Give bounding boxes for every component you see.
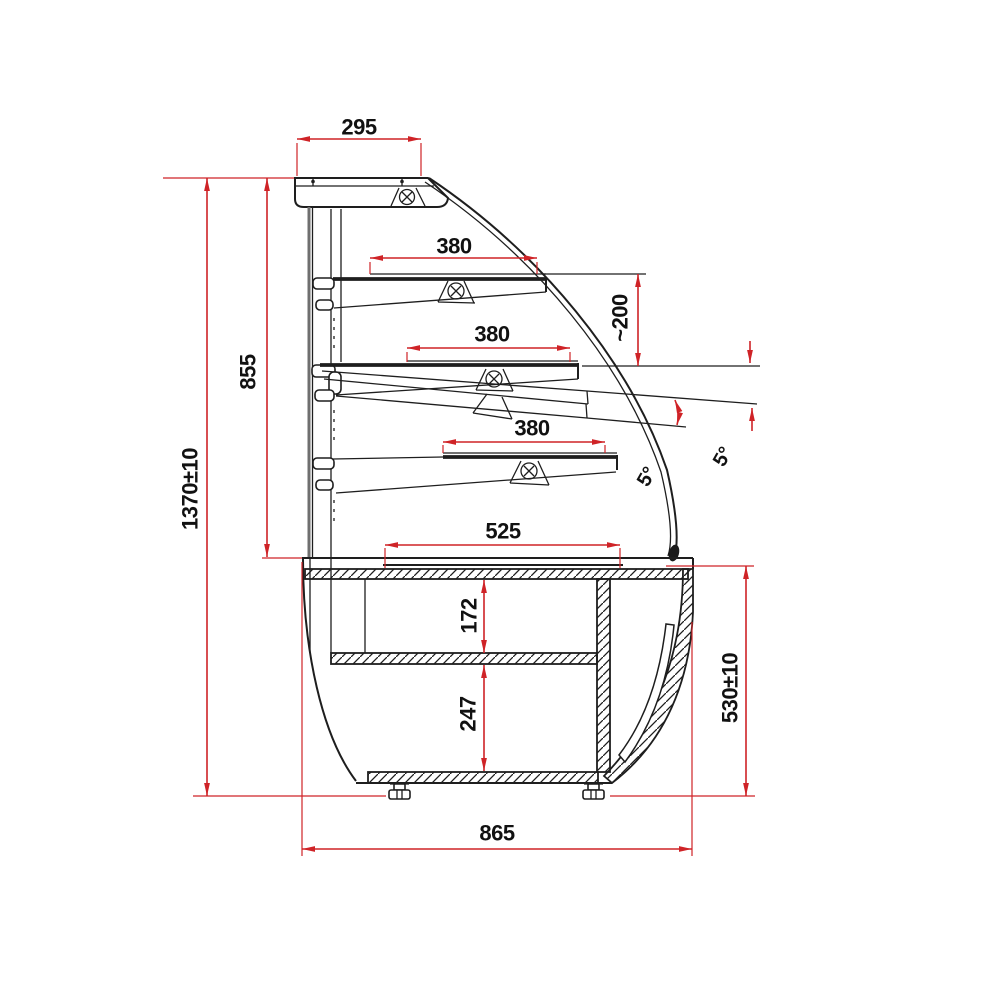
dim-shelf-bottom-depth: 380 xyxy=(443,416,605,454)
shelf-top xyxy=(313,274,546,310)
base-cabinet xyxy=(302,558,693,799)
dim-label-1370: 1370±10 xyxy=(178,448,203,530)
shelf-middle-tilted xyxy=(322,371,588,419)
shelf-bottom xyxy=(313,453,617,493)
shelf-middle xyxy=(312,361,588,419)
lamp-icon xyxy=(391,188,425,206)
dim-label-865: 865 xyxy=(479,821,514,846)
dim-label-172: 172 xyxy=(457,598,482,633)
dim-shelf-gap: ~200 xyxy=(542,274,646,366)
dim-label-380-bottom: 380 xyxy=(514,416,549,441)
technical-drawing-page: 295 380 ~200 380 380 855 1370±10 5° 5 xyxy=(0,0,1000,1000)
screw-icon xyxy=(400,179,404,186)
dim-label-247: 247 xyxy=(456,696,481,731)
leveling-foot xyxy=(583,784,604,799)
glass-end-cap xyxy=(667,544,681,563)
dim-tilt-far: 5° xyxy=(709,341,752,470)
dim-label-855: 855 xyxy=(236,354,261,389)
lamp-icon xyxy=(510,461,549,485)
dim-upper-compartment: 172 xyxy=(457,580,485,653)
dim-label-380-top: 380 xyxy=(436,234,471,259)
leveling-foot xyxy=(389,784,410,799)
dim-label-295: 295 xyxy=(341,115,376,140)
screw-icon xyxy=(311,179,315,186)
countertop-insulation xyxy=(305,569,688,579)
dim-lower-compartment: 247 xyxy=(456,665,485,771)
dim-label-5deg-far: 5° xyxy=(709,443,737,470)
mid-shelf-insulation xyxy=(331,653,597,664)
display-case-section-drawing: 295 380 ~200 380 380 855 1370±10 5° 5 xyxy=(0,0,1000,1000)
shelf-hook xyxy=(313,278,334,289)
curved-front-panel xyxy=(604,569,693,783)
shelf-hook xyxy=(315,390,334,401)
dim-deck-depth: 525 xyxy=(385,519,620,569)
dim-shelf-zone-height: 855 xyxy=(236,178,303,558)
shelf-hook xyxy=(313,458,334,469)
lamp-icon xyxy=(476,369,513,391)
shelf-hook xyxy=(316,300,333,310)
dim-label-380-middle: 380 xyxy=(474,322,509,347)
front-wall-insulation xyxy=(597,579,610,772)
dim-label-200: ~200 xyxy=(608,294,633,342)
tilt-reference-lines xyxy=(582,366,760,427)
bottom-insulation xyxy=(368,772,598,783)
shelf-hook xyxy=(316,480,333,490)
rear-skirt xyxy=(303,559,356,781)
dim-shelf-top-depth: 380 xyxy=(370,234,537,275)
dim-label-5deg-near: 5° xyxy=(633,463,661,490)
dim-label-530: 530±10 xyxy=(718,653,743,724)
dim-label-525: 525 xyxy=(485,519,520,544)
dim-overall-depth: 865 xyxy=(302,562,692,856)
dim-tilt-near: 5° xyxy=(633,400,678,490)
dim-overall-height: 1370±10 xyxy=(163,178,294,796)
dim-shelf-middle-depth: 380 xyxy=(407,322,570,363)
dim-canopy-depth: 295 xyxy=(297,115,421,177)
